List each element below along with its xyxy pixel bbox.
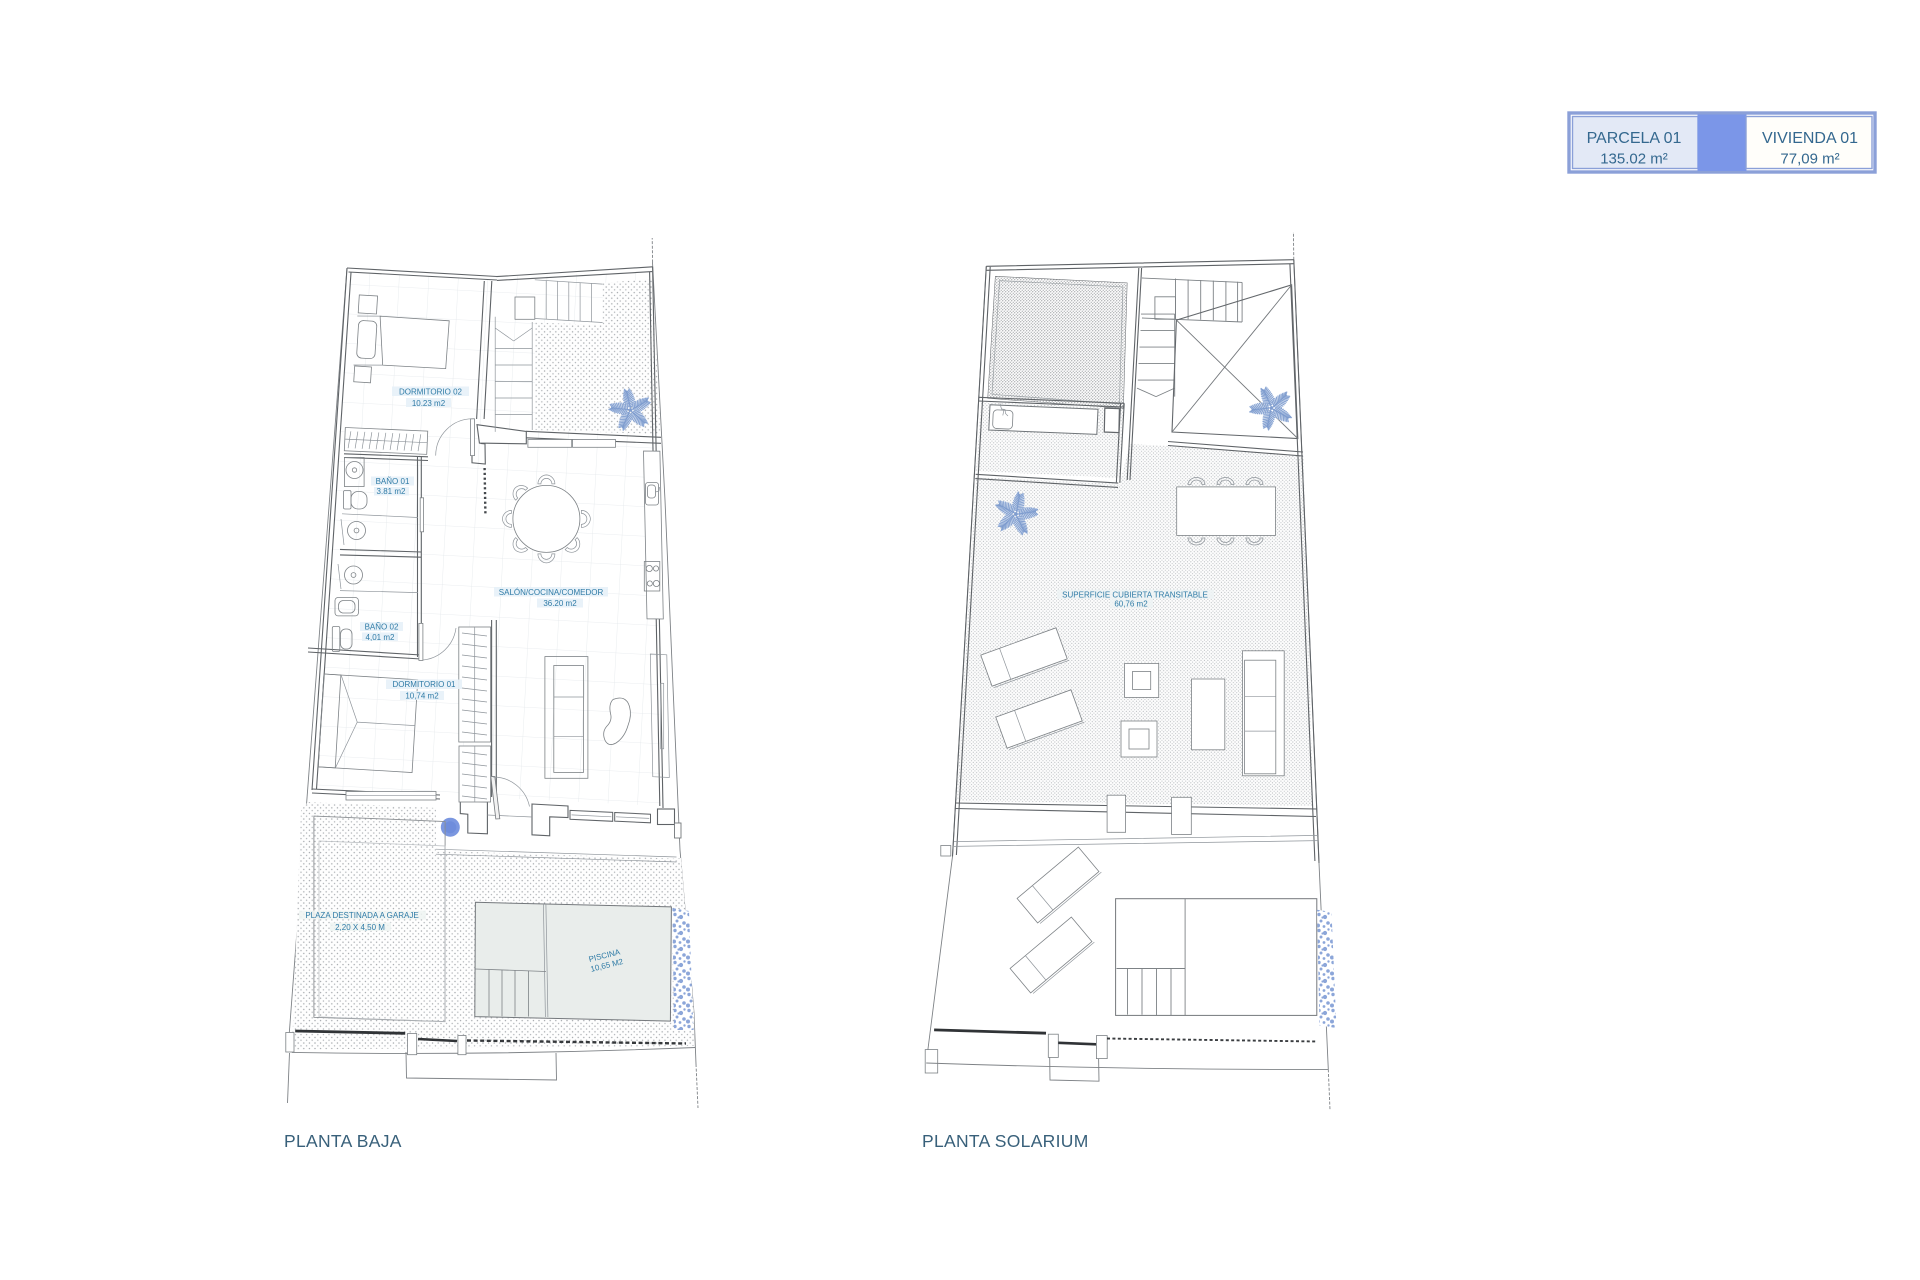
svg-text:BAÑO 02: BAÑO 02 xyxy=(365,623,399,632)
svg-text:DORMITORIO 01: DORMITORIO 01 xyxy=(393,680,457,689)
svg-text:10.23 m2: 10.23 m2 xyxy=(412,399,446,408)
svg-text:DORMITORIO 02: DORMITORIO 02 xyxy=(399,388,463,397)
svg-text:PARCELA 01: PARCELA 01 xyxy=(1587,130,1682,147)
svg-text:SUPERFICIE CUBIERTA TRANSITABL: SUPERFICIE CUBIERTA TRANSITABLE xyxy=(1062,591,1208,600)
svg-text:PLANTA SOLARIUM: PLANTA SOLARIUM xyxy=(922,1131,1089,1151)
svg-text:BAÑO 01: BAÑO 01 xyxy=(376,477,410,486)
svg-text:77,09 m²: 77,09 m² xyxy=(1780,151,1839,168)
svg-text:4,01 m2: 4,01 m2 xyxy=(366,633,395,642)
svg-text:10,74 m2: 10,74 m2 xyxy=(405,692,439,701)
svg-text:3.81 m2: 3.81 m2 xyxy=(377,487,406,496)
svg-text:2,20 X 4,50 M: 2,20 X 4,50 M xyxy=(335,923,385,932)
svg-text:PLAZA DESTINADA A GARAJE: PLAZA DESTINADA A GARAJE xyxy=(305,911,418,920)
svg-text:60,76 m2: 60,76 m2 xyxy=(1114,600,1148,609)
svg-text:SALÓN/COCINA/COMEDOR: SALÓN/COCINA/COMEDOR xyxy=(499,588,604,597)
svg-text:135.02 m²: 135.02 m² xyxy=(1600,151,1668,168)
svg-text:VIVIENDA 01: VIVIENDA 01 xyxy=(1762,130,1858,147)
svg-text:PLANTA BAJA: PLANTA BAJA xyxy=(284,1131,402,1151)
svg-text:36.20 m2: 36.20 m2 xyxy=(543,599,577,608)
